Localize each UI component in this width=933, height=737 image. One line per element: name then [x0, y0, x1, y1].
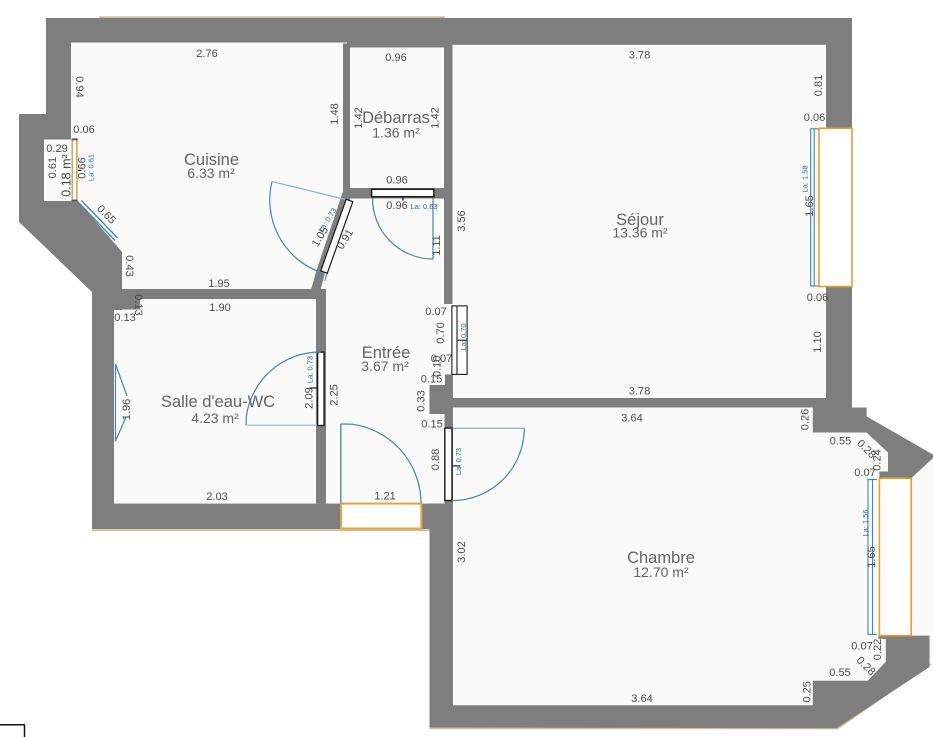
- svg-text:0.18 m²: 0.18 m²: [60, 154, 74, 196]
- svg-text:1.42: 1.42: [353, 107, 365, 128]
- svg-text:3.78: 3.78: [629, 385, 650, 397]
- svg-text:2.09: 2.09: [304, 387, 316, 408]
- svg-text:0.06: 0.06: [73, 124, 94, 136]
- svg-text:6.33 m²: 6.33 m²: [187, 165, 235, 181]
- svg-text:1.95: 1.95: [208, 278, 229, 290]
- svg-text:0.25: 0.25: [802, 681, 814, 702]
- svg-text:0.96: 0.96: [385, 52, 406, 64]
- svg-text:0.70: 0.70: [435, 322, 447, 343]
- svg-text:3.64: 3.64: [621, 412, 642, 424]
- svg-text:1.21: 1.21: [374, 491, 395, 503]
- svg-text:1.48: 1.48: [329, 103, 341, 124]
- svg-text:Salle d'eau-WC: Salle d'eau-WC: [161, 393, 275, 411]
- svg-text:0.43: 0.43: [123, 255, 135, 276]
- svg-text:3.02: 3.02: [456, 541, 468, 562]
- svg-text:0.07: 0.07: [851, 641, 872, 653]
- svg-text:13.36 m²: 13.36 m²: [612, 225, 668, 241]
- svg-text:1.96: 1.96: [121, 399, 133, 420]
- svg-text:La: 0.70: La: 0.70: [459, 323, 468, 350]
- svg-text:12.70 m²: 12.70 m²: [633, 564, 689, 580]
- svg-text:0.07: 0.07: [425, 306, 446, 318]
- svg-text:La: 1.58: La: 1.58: [801, 165, 810, 192]
- svg-text:0.15: 0.15: [421, 374, 442, 386]
- svg-text:3.78: 3.78: [629, 50, 650, 62]
- svg-text:0.06: 0.06: [804, 112, 825, 124]
- svg-text:0.26: 0.26: [800, 409, 812, 430]
- svg-text:1.90: 1.90: [209, 302, 230, 314]
- svg-text:2.25: 2.25: [328, 384, 340, 405]
- svg-text:4.23 m²: 4.23 m²: [191, 410, 239, 426]
- svg-text:0.22: 0.22: [872, 639, 884, 660]
- svg-text:0.06: 0.06: [807, 292, 828, 304]
- svg-text:3.67 m²: 3.67 m²: [361, 358, 409, 374]
- svg-text:1.65: 1.65: [804, 195, 816, 216]
- svg-text:0.29: 0.29: [46, 143, 67, 155]
- svg-text:1.42: 1.42: [430, 107, 442, 128]
- svg-text:0.96: 0.96: [386, 200, 407, 212]
- svg-text:2.03: 2.03: [206, 491, 227, 503]
- svg-text:1.36 m²: 1.36 m²: [372, 125, 420, 141]
- svg-text:1.65: 1.65: [866, 546, 878, 567]
- svg-text:La: 0.73: La: 0.73: [454, 448, 463, 475]
- svg-text:La: 0.63: La: 0.63: [410, 202, 437, 211]
- svg-text:0.94: 0.94: [73, 76, 85, 97]
- svg-text:La: 1.56: La: 1.56: [861, 509, 870, 536]
- svg-text:0.55: 0.55: [829, 667, 850, 679]
- svg-text:3.56: 3.56: [456, 210, 468, 231]
- svg-text:1.11: 1.11: [431, 235, 443, 256]
- svg-text:0.61: 0.61: [47, 157, 59, 178]
- svg-text:0.07: 0.07: [854, 467, 875, 479]
- svg-text:La: 0.61: La: 0.61: [87, 154, 96, 181]
- svg-text:0.88: 0.88: [430, 449, 442, 470]
- svg-text:3.64: 3.64: [631, 693, 652, 705]
- svg-text:0.81: 0.81: [813, 75, 825, 96]
- svg-text:0.55: 0.55: [830, 436, 851, 448]
- svg-text:0.13: 0.13: [114, 312, 135, 324]
- svg-text:2.76: 2.76: [196, 48, 217, 60]
- svg-text:0.96: 0.96: [386, 175, 407, 187]
- svg-text:0.15: 0.15: [421, 419, 442, 431]
- svg-text:1.10: 1.10: [812, 331, 824, 352]
- svg-text:La: 0.73: La: 0.73: [306, 356, 315, 383]
- svg-text:0.33: 0.33: [416, 390, 428, 411]
